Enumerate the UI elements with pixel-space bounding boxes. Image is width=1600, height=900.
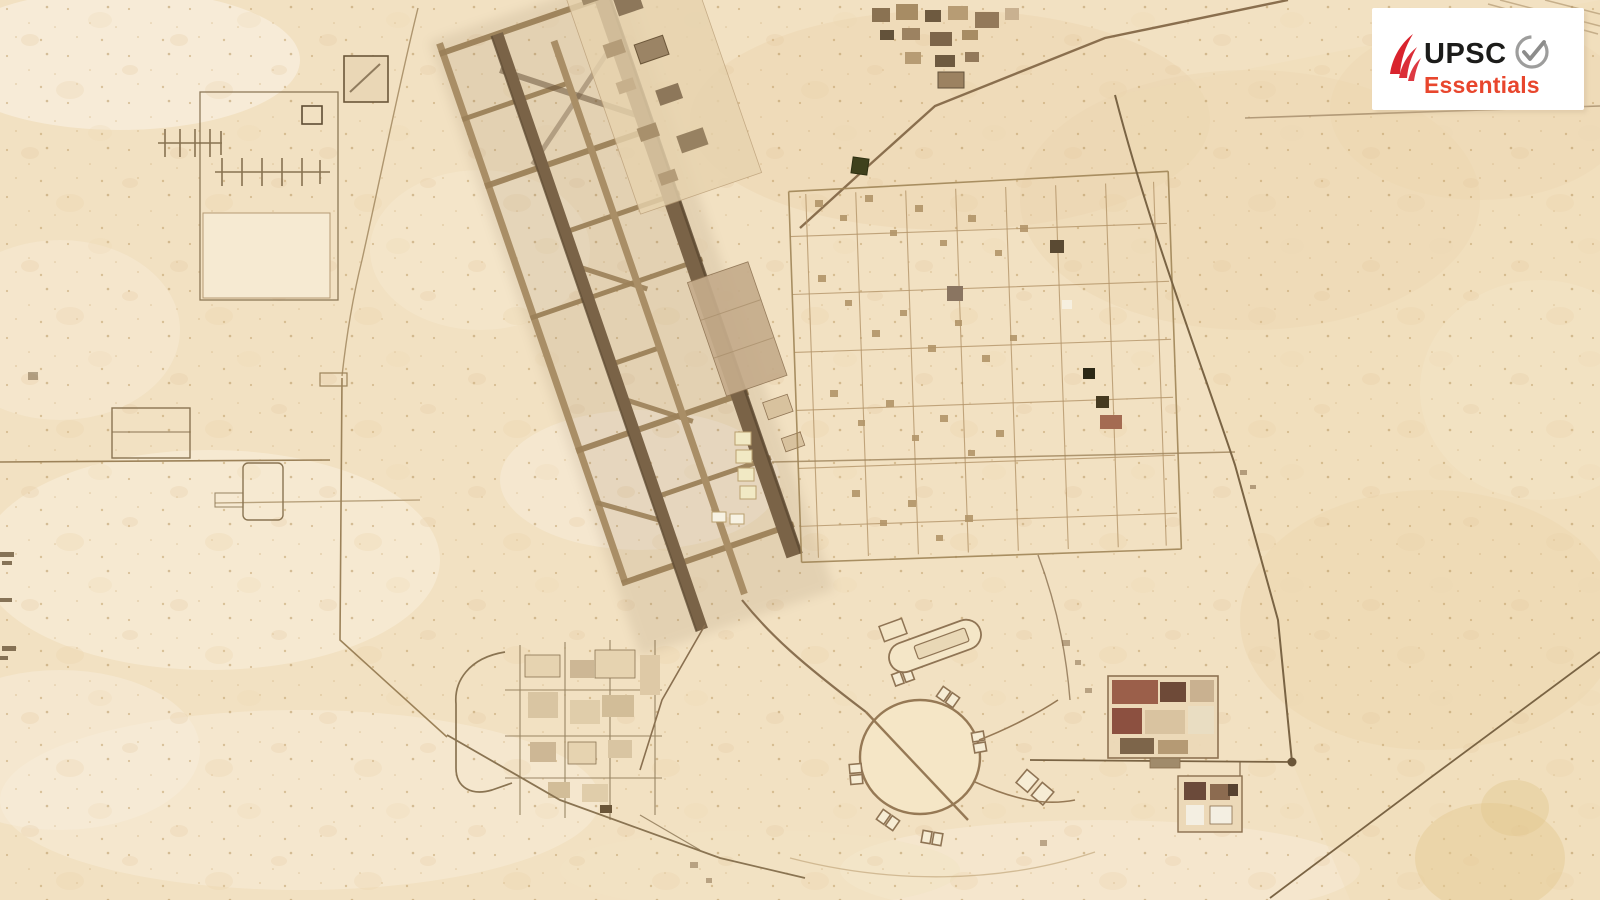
screenshot-root: UPSC Essentials [0, 0, 1600, 900]
satellite-image: UPSC Essentials [0, 0, 1600, 900]
southeast-compound-main [1108, 676, 1218, 768]
green-square [851, 157, 869, 175]
logo-subtitle-text: Essentials [1424, 72, 1540, 98]
watermark-card: UPSC Essentials [1372, 8, 1587, 113]
southeast-compound-small [1178, 776, 1242, 832]
logo-brand-text: UPSC [1424, 38, 1507, 70]
northwest-compound [344, 56, 388, 102]
road-junction-dot [1288, 758, 1297, 767]
terrain-blotch [0, 0, 1600, 900]
antenna-pad [203, 213, 330, 298]
